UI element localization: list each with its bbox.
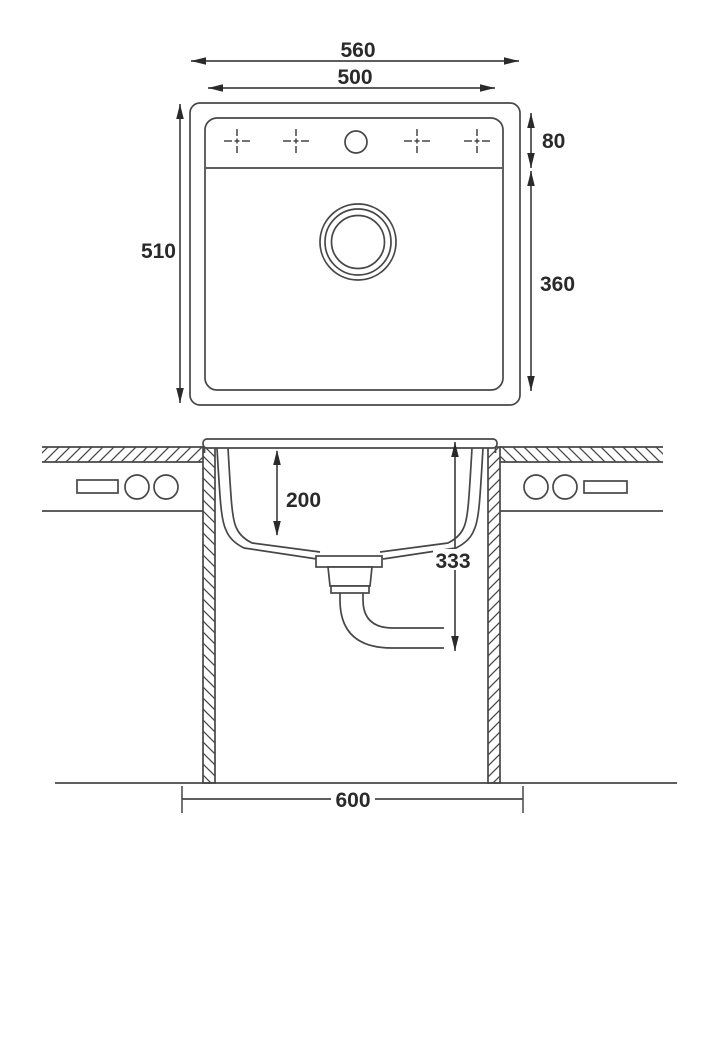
arrow-down-icon bbox=[176, 388, 184, 403]
tap-hole-marker bbox=[404, 129, 430, 153]
arrow-up-icon bbox=[273, 450, 281, 465]
cabinet-wall-left bbox=[203, 447, 215, 783]
dim-overall-depth: 333 bbox=[433, 442, 474, 651]
top-view: 560 500 510 80 360 bbox=[141, 39, 575, 405]
dim-label-outer-width: 560 bbox=[340, 39, 375, 62]
bowl-section bbox=[217, 448, 483, 559]
dim-inner-width: 500 bbox=[208, 66, 495, 92]
countertop-left bbox=[42, 447, 203, 462]
sink-technical-drawing: 560 500 510 80 360 bbox=[0, 0, 708, 1048]
arrow-left-icon bbox=[191, 57, 206, 65]
arrow-down-icon bbox=[451, 636, 459, 651]
faucet-hole bbox=[345, 131, 367, 153]
knob-icon bbox=[125, 475, 149, 499]
tap-hole-markers bbox=[224, 129, 490, 153]
drawer-handle-right bbox=[584, 481, 627, 493]
dim-outer-depth: 510 bbox=[141, 104, 184, 403]
arrow-down-icon bbox=[527, 376, 535, 391]
arrow-up-icon bbox=[176, 104, 184, 119]
arrow-up-icon bbox=[527, 171, 535, 186]
arrow-down-icon bbox=[273, 521, 281, 536]
tap-hole-marker bbox=[224, 129, 250, 153]
dim-label-inner-width: 500 bbox=[337, 66, 372, 89]
countertop-right bbox=[500, 447, 663, 462]
dim-cabinet-width: 600 bbox=[182, 786, 523, 813]
section-view: 200 333 600 bbox=[42, 439, 677, 813]
dim-label-cabinet-width: 600 bbox=[335, 789, 370, 812]
dim-bowl-length: 360 bbox=[527, 171, 575, 391]
tap-hole-marker bbox=[464, 129, 490, 153]
dim-label-bowl-length: 360 bbox=[540, 273, 575, 296]
dim-outer-width: 560 bbox=[191, 39, 519, 65]
cabinet-wall-right bbox=[488, 447, 500, 783]
dim-label-deck-depth: 80 bbox=[542, 130, 565, 153]
knob-icon bbox=[524, 475, 548, 499]
arrow-left-icon bbox=[208, 84, 223, 92]
dim-label-overall-depth: 333 bbox=[435, 550, 470, 573]
arrow-right-icon bbox=[504, 57, 519, 65]
tap-hole-marker bbox=[283, 129, 309, 153]
drain-assembly bbox=[316, 556, 382, 593]
sink-outer-edge bbox=[190, 103, 520, 405]
dim-label-outer-depth: 510 bbox=[141, 240, 176, 263]
sink-technical-drawing-page: 560 500 510 80 360 bbox=[0, 0, 708, 1048]
dim-label-bowl-depth: 200 bbox=[286, 489, 321, 512]
dim-deck-depth: 80 bbox=[527, 113, 565, 168]
drain-outlet bbox=[320, 204, 396, 280]
sink-inner-edge bbox=[205, 118, 503, 390]
waste-pipe bbox=[340, 593, 444, 648]
dim-bowl-depth: 200 bbox=[273, 450, 321, 536]
drawer-handle-left bbox=[77, 480, 118, 493]
arrow-down-icon bbox=[527, 153, 535, 168]
arrow-right-icon bbox=[480, 84, 495, 92]
knob-icon bbox=[553, 475, 577, 499]
arrow-up-icon bbox=[527, 113, 535, 128]
knob-icon bbox=[154, 475, 178, 499]
